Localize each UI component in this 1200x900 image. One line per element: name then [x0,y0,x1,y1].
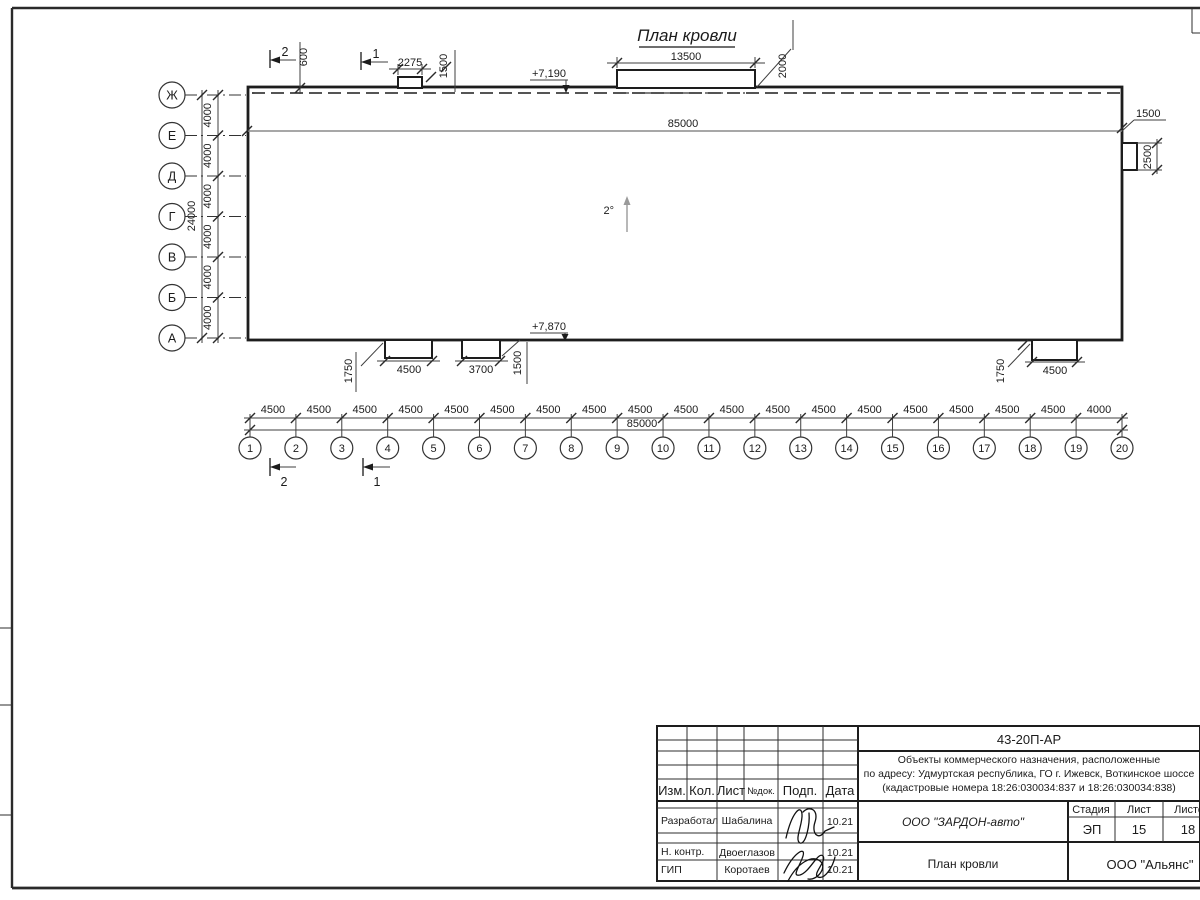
dim-label: 4500 [307,404,331,416]
sheet-value: 15 [1132,822,1146,837]
svg-text:+7,190: +7,190 [532,68,566,80]
axis-bubble-label: 20 [1116,443,1128,455]
section-mark-1-top: 1 [361,47,388,70]
slope-arrow: 2° [603,196,630,232]
svg-text:1750: 1750 [995,359,1007,383]
stage-value: ЭП [1083,822,1102,837]
title-block: 43-20П-АР Объекты коммерческого назначен… [657,726,1200,881]
svg-text:2°: 2° [603,205,614,217]
axis-bubble-label: 14 [841,443,853,455]
dim-label: 4500 [674,404,698,416]
dim-label: 4500 [766,404,790,416]
drawing-title: План кровли [637,26,737,45]
svg-text:1: 1 [374,475,381,489]
axis-bubble-label: 11 [703,443,714,455]
axis-bubble-label: 12 [749,443,761,455]
dim-label: 4500 [949,404,973,416]
svg-text:2: 2 [281,475,288,489]
canopy-left: 4500 1750 [343,340,440,392]
row-name: Коротаев [724,864,770,876]
bottom-dimension-lines: 85000 [244,418,1128,435]
axis-bubble-label: 16 [932,443,944,455]
org-name: ООО "Альянс" [1107,857,1194,872]
axis-bubble-label: 19 [1070,443,1082,455]
dim-label: 4000 [202,144,214,168]
axis-bubble-label: В [168,251,176,265]
dim-label: 4500 [398,404,422,416]
svg-text:1500: 1500 [512,351,524,375]
sheets-label: Листов [1174,804,1200,816]
svg-text:2275: 2275 [398,57,422,69]
svg-text:2000: 2000 [777,54,789,78]
axis-bubble-label: 1 [247,443,253,455]
col-izm: Изм. [658,783,686,798]
dim-label: 4500 [261,404,285,416]
svg-text:1500: 1500 [438,54,450,78]
sheet-label: Лист [1127,804,1151,816]
axis-bubble-label: 9 [614,443,620,455]
row-date: 10.21 [827,864,853,876]
dim-label: 4000 [202,225,214,249]
dim-total-top: 85000 [668,118,699,130]
right-exit-unit: 1500 2500 [1117,108,1166,175]
row-date: 10.21 [827,816,853,828]
dim-label: 4500 [811,404,835,416]
svg-text:2: 2 [282,45,289,59]
axis-bubble-label: Ж [166,89,178,103]
dim-label: 4500 [628,404,652,416]
dim-label: 4500 [995,404,1019,416]
stage-label: Стадия [1072,804,1110,816]
dim-label: 4500 [582,404,606,416]
dim-label: 4500 [1041,404,1065,416]
axis-bubble-label: 3 [339,443,345,455]
axis-bubble-label: 17 [978,443,990,455]
svg-text:3700: 3700 [469,364,493,376]
svg-text:600: 600 [298,48,310,66]
company-name: ООО "ЗАРДОН-авто" [902,815,1025,829]
dim-label: 4000 [202,306,214,330]
dim-label: 4500 [536,404,560,416]
axis-bubble-label: 13 [795,443,807,455]
svg-text:1500: 1500 [1136,108,1160,120]
drawing-name: План кровли [928,857,999,871]
row-role: ГИП [661,864,682,876]
axis-bubble-label: 18 [1024,443,1036,455]
address-line: Объекты коммерческого назначения, распол… [898,754,1161,766]
svg-text:85000: 85000 [627,418,658,430]
elevation-mark-top: +7,190 [530,68,570,93]
svg-text:13500: 13500 [671,51,702,63]
row-date: 10.21 [827,847,853,859]
doc-number: 43-20П-АР [997,732,1061,747]
row-name: Шабалина [722,815,773,827]
section-mark-2-top: 2 [270,45,296,68]
row-role: Н. контр. [661,846,704,858]
dim-label: 4000 [202,184,214,208]
address-line: (кадастровые номера 18:26:030034:837 и 1… [882,782,1176,794]
axis-bubble-label: Г [169,210,176,224]
dim-label: 4000 [202,103,214,127]
svg-text:1750: 1750 [343,359,355,383]
svg-text:4500: 4500 [1043,365,1067,377]
col-dok: №док. [747,786,775,797]
dim-label: 4000 [1087,404,1111,416]
dim-label: 4500 [352,404,376,416]
axis-bubble-label: Б [168,291,176,305]
col-list: Лист [717,783,745,798]
axis-bubble-label: 7 [522,443,528,455]
axis-bubble-label: Е [168,129,176,143]
dim-label: 4000 [202,265,214,289]
section-mark-2-bottom: 2 [270,458,296,489]
address-line: по адресу: Удмуртская республика, ГО г. … [864,768,1195,780]
row-role: Разработал [661,815,718,827]
section-mark-1-bottom: 1 [363,458,390,489]
canopy-mid: 3700 1500 [455,340,527,384]
sheets-value: 18 [1181,822,1195,837]
dim-label: 4500 [720,404,744,416]
building-outline: 85000 [242,87,1122,340]
svg-text:2500: 2500 [1142,145,1154,169]
row-name: Двоеглазов [719,847,775,859]
svg-text:1: 1 [373,47,380,61]
canopy-right: 4500 1750 [995,340,1085,383]
col-kol: Кол. [689,783,715,798]
axis-bubble-label: 6 [476,443,482,455]
svg-text:4500: 4500 [397,364,421,376]
svg-text:+7,870: +7,870 [532,321,566,333]
col-data: Дата [826,783,856,798]
axis-bubble-label: 10 [657,443,669,455]
axis-bubble-label: 5 [431,443,437,455]
axis-bubble-label: 8 [568,443,574,455]
axis-bubble-label: 15 [886,443,898,455]
dim-label: 4500 [490,404,514,416]
axis-bubble-label: А [168,332,177,346]
dim-label: 4500 [903,404,927,416]
roof-plan-sheet: План кровли 85000 2° 2275 1500 [0,0,1200,900]
dim-label: 4500 [444,404,468,416]
axis-bubble-label: 2 [293,443,299,455]
axis-bubble-label: 4 [385,443,391,455]
dim-label: 4500 [857,404,881,416]
axis-bubble-label: Д [168,170,177,184]
col-podp: Подп. [783,783,818,798]
elevation-mark-bottom: +7,870 [530,321,569,341]
